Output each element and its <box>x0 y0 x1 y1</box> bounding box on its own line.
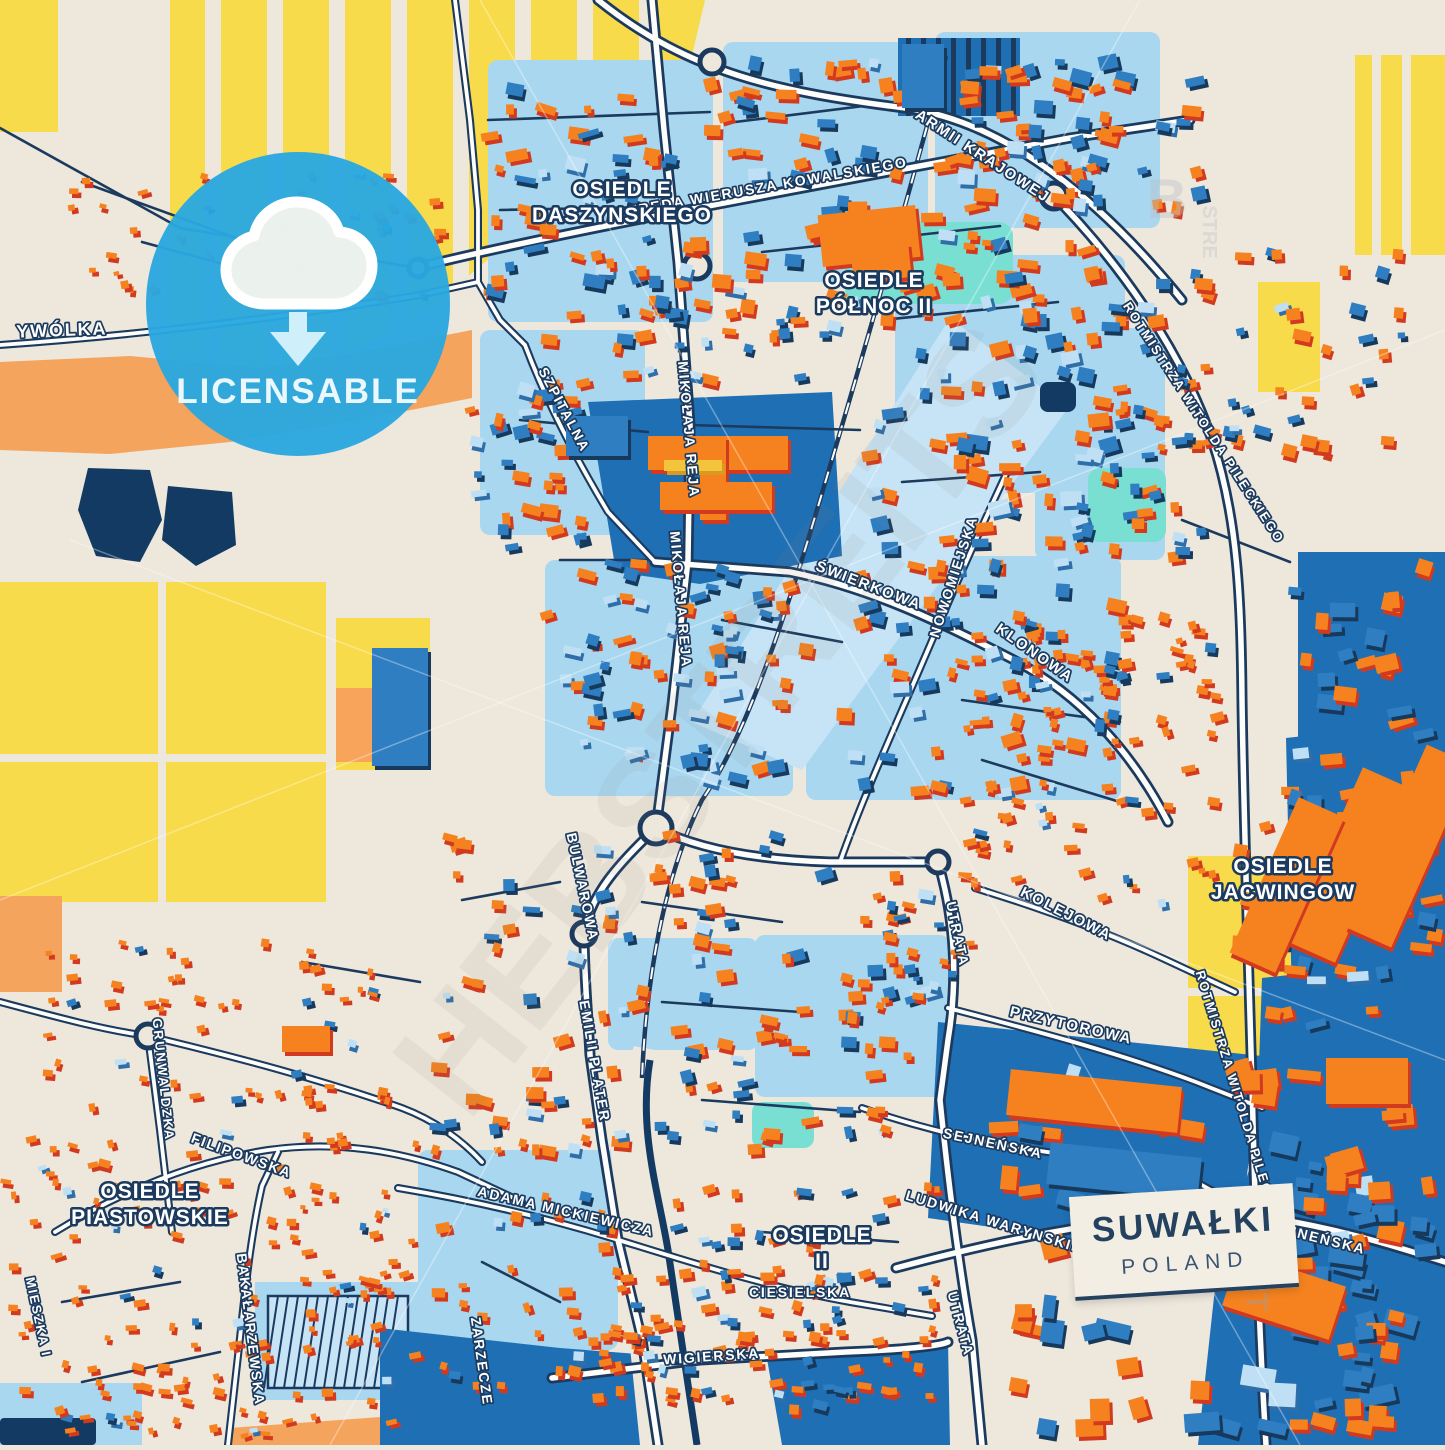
city-name: SUWAŁKI <box>1091 1199 1276 1250</box>
download-arrow-stem <box>289 312 307 334</box>
badge-label: LICENSABLE <box>176 372 420 412</box>
street-label-yw-lka: YWÓLKA <box>16 317 107 341</box>
watermark-text: STRE <box>1198 205 1220 258</box>
roundabout <box>700 50 724 74</box>
download-arrow-head <box>270 332 326 366</box>
cloud-download-icon <box>198 186 398 372</box>
watermark-text: B <box>1147 167 1187 230</box>
roundabout <box>927 851 949 873</box>
country-name: POLAND <box>1121 1247 1251 1279</box>
licensable-badge[interactable]: LICENSABLE <box>146 152 450 456</box>
street-label-ciesielska: CIESIELSKA <box>749 1284 851 1300</box>
city-title-card: SUWAŁKI POLAND <box>1069 1183 1299 1301</box>
